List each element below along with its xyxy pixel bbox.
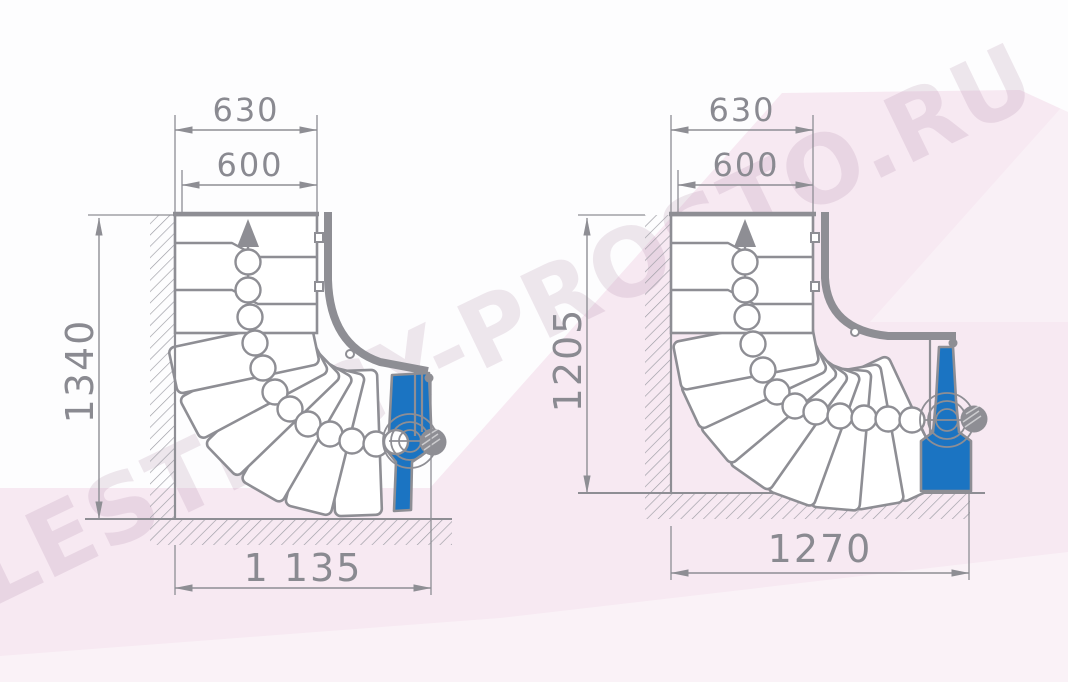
wall-hatch: [645, 215, 671, 493]
module-circle: [876, 407, 901, 432]
module-circle: [828, 404, 853, 429]
dim-label-top-outer: 630: [708, 91, 775, 129]
module-circle: [852, 406, 877, 431]
dim-label-bottom-width: 1 135: [244, 546, 363, 590]
module-circle: [735, 305, 760, 330]
technical-drawing: 630 600 1340 1 135: [0, 0, 1068, 682]
handrail-end-cap: [425, 374, 434, 383]
dim-label-side-height: 1340: [58, 319, 102, 424]
baluster-tab: [851, 328, 859, 336]
baluster-tab: [346, 350, 354, 358]
handrail-end-cap: [949, 339, 958, 348]
baluster-tab: [315, 233, 323, 242]
module-circle: [243, 331, 268, 356]
module-circle: [238, 305, 263, 330]
baluster-tab: [811, 282, 819, 291]
baluster-tab: [315, 282, 323, 291]
dim-label-top-inner: 600: [216, 146, 283, 184]
module-circle: [251, 356, 276, 381]
dim-label-side-height: 1205: [546, 308, 590, 413]
module-circle: [751, 358, 776, 383]
module-circle: [733, 250, 758, 275]
staircase-drawing-canvas: LESTNICY-PROSTO.RU: [0, 0, 1068, 682]
outer-stringer: [825, 212, 956, 336]
dim-label-top-outer: 630: [212, 91, 279, 129]
module-circle: [733, 278, 758, 303]
right-staircase-drawing: 630 600 1205 1270: [546, 91, 988, 580]
dim-label-top-inner: 600: [712, 146, 779, 184]
module-circle: [340, 429, 365, 454]
module-circle: [236, 250, 261, 275]
dim-label-bottom-width: 1270: [768, 527, 873, 571]
module-circle: [236, 278, 261, 303]
module-circle: [741, 332, 766, 357]
baluster-tab: [811, 233, 819, 242]
module-circle: [804, 400, 829, 425]
ground-hatch: [150, 519, 452, 545]
outer-stringer: [328, 212, 428, 371]
left-staircase-drawing: 630 600 1340 1 135: [58, 91, 452, 595]
